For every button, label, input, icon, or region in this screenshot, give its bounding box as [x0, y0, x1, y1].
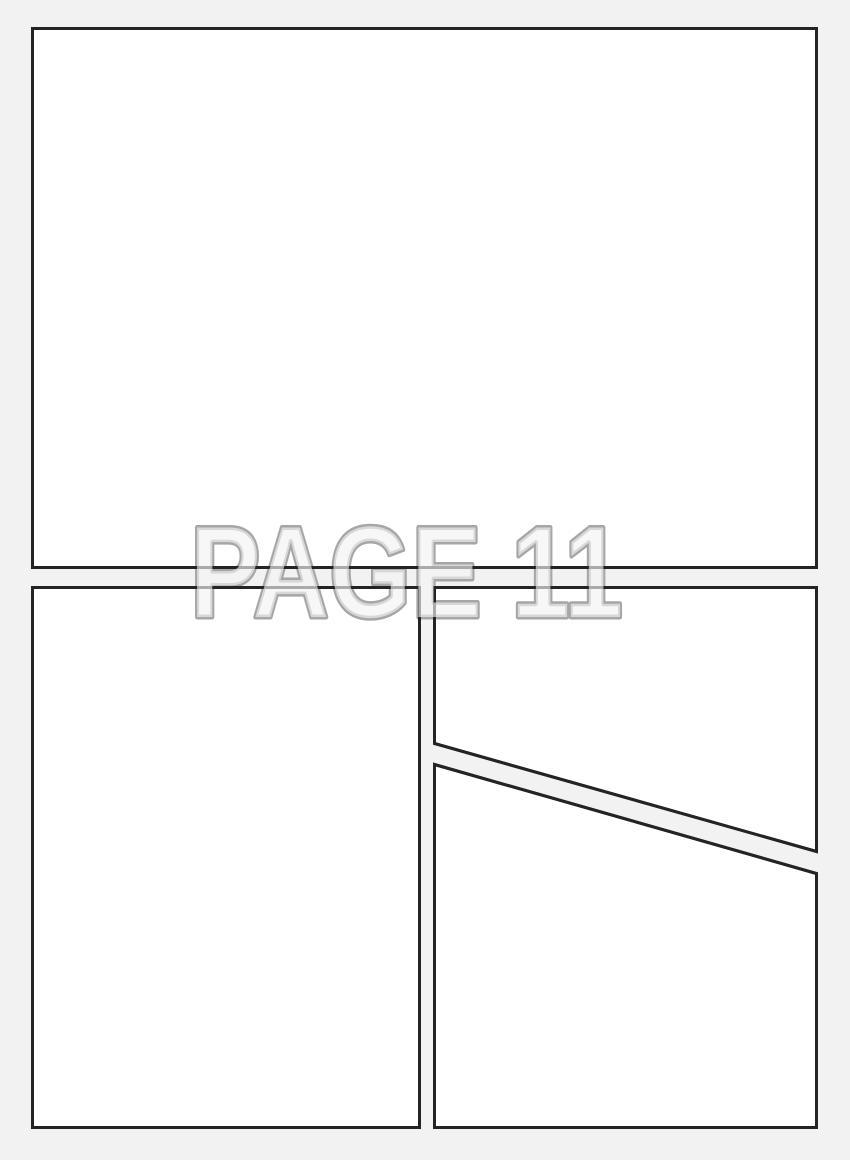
- panel-bottom-left: [33, 588, 420, 1128]
- comic-page-template: PAGE 11 PAGE 11: [0, 0, 850, 1160]
- page-canvas: PAGE 11 PAGE 11: [0, 0, 850, 1160]
- page-number-text: PAGE 11: [190, 499, 623, 645]
- panel-top: [33, 29, 817, 568]
